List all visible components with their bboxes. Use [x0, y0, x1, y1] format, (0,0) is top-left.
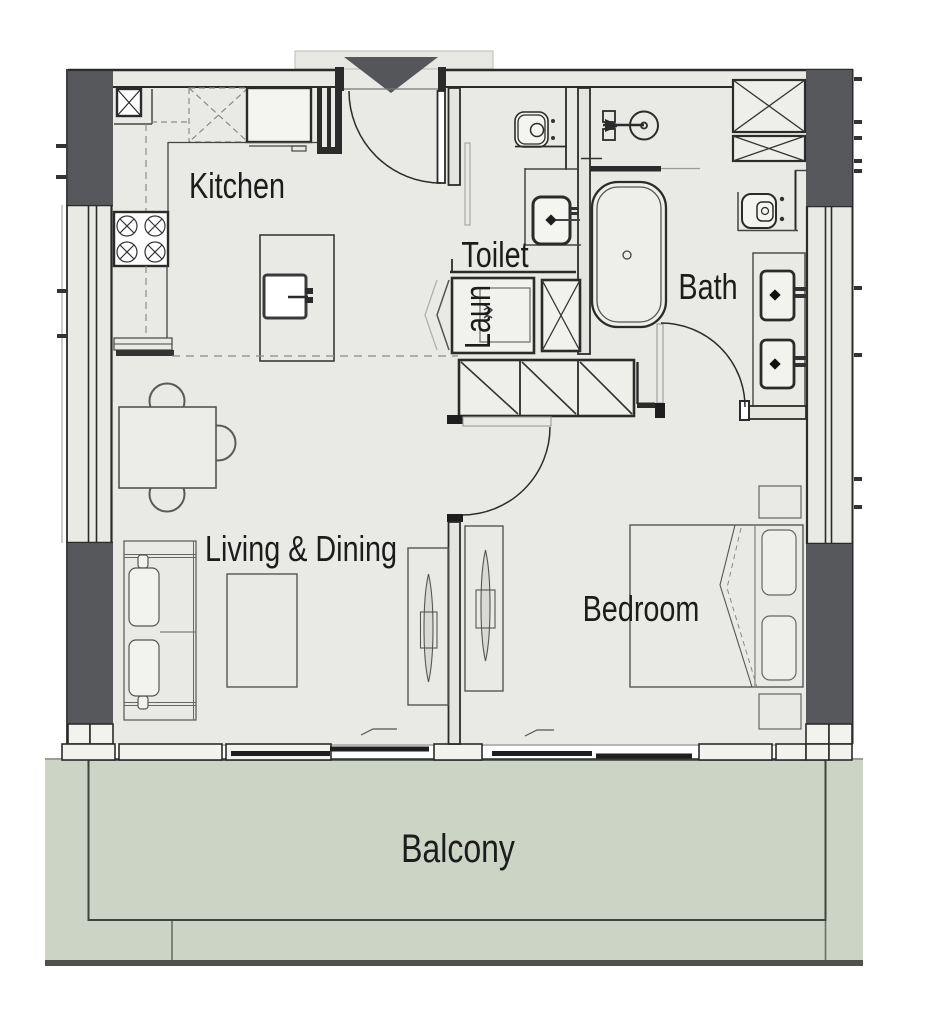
svg-text:Laun: Laun [457, 285, 498, 349]
svg-text:Toilet: Toilet [461, 234, 528, 275]
svg-text:Bedroom: Bedroom [583, 588, 700, 629]
svg-text:Living & Dining: Living & Dining [205, 528, 397, 569]
svg-text:Bath: Bath [678, 266, 737, 307]
svg-text:Balcony: Balcony [401, 826, 516, 871]
svg-text:Kitchen: Kitchen [189, 165, 285, 206]
